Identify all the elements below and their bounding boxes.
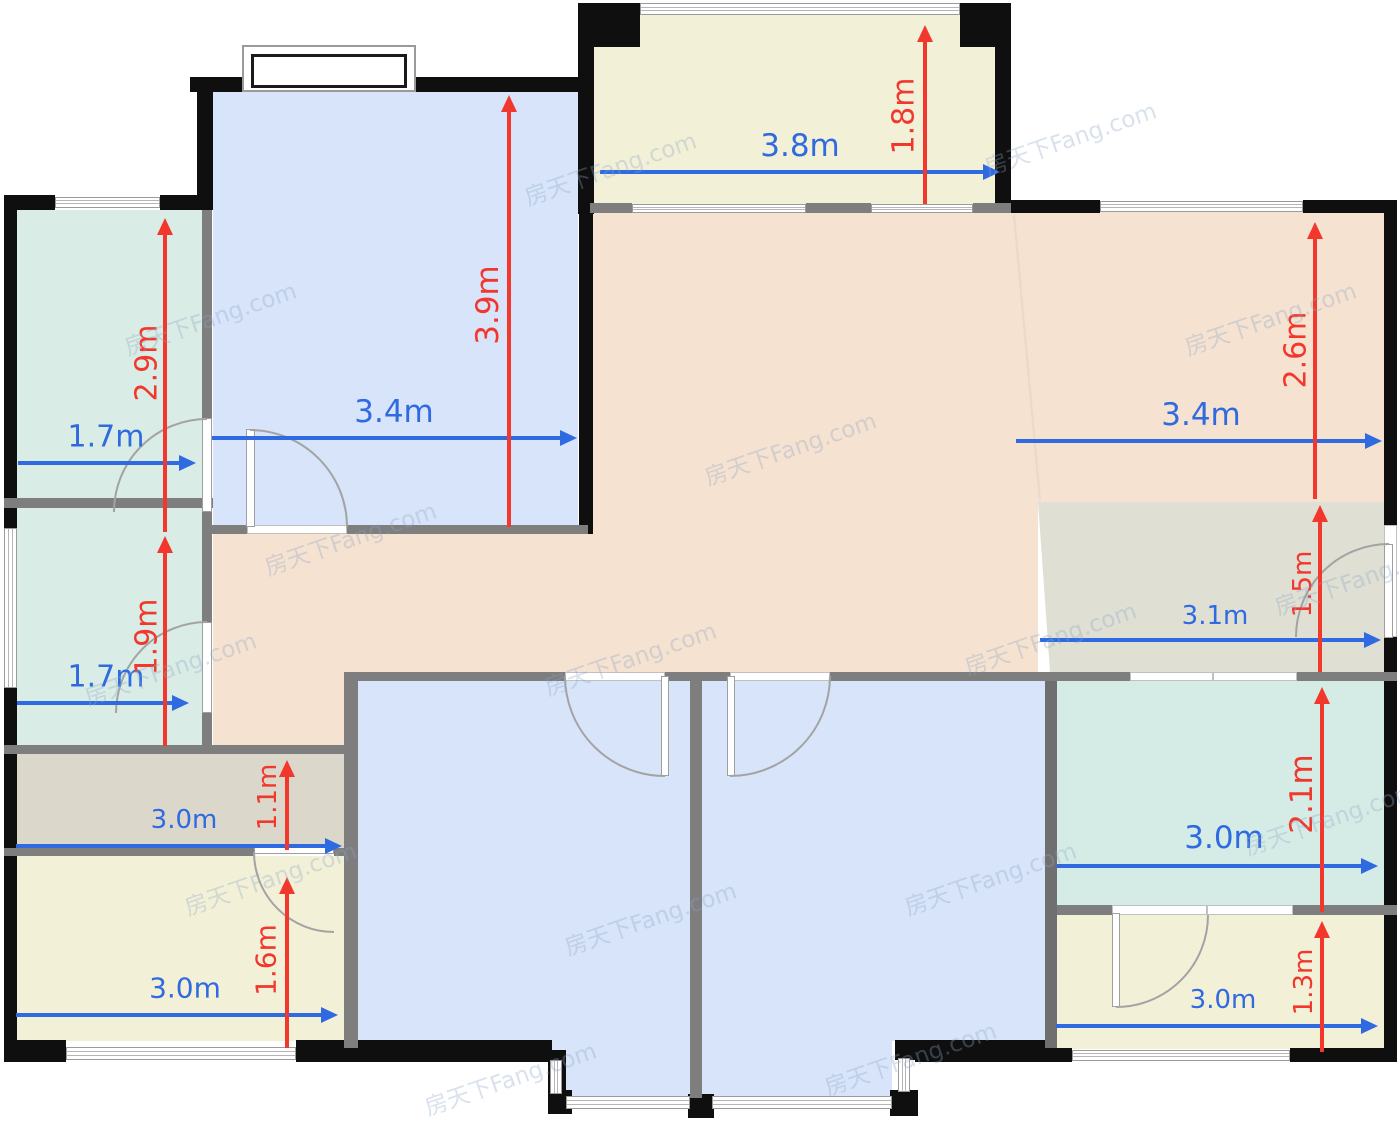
door-leaf — [1112, 913, 1120, 1007]
room-bedroom-top-left — [213, 90, 578, 526]
wall — [4, 195, 17, 528]
interior-wall — [690, 681, 702, 1098]
wall — [1303, 200, 1397, 213]
dimension-arrowhead — [501, 95, 517, 112]
dimension-label: 1.3m — [1289, 949, 1319, 1016]
room-living-dining — [590, 502, 1038, 673]
dimension-arrow — [285, 889, 289, 1048]
wall — [1384, 200, 1397, 525]
door-leaf — [202, 418, 212, 512]
dimension-arrow — [1320, 699, 1324, 912]
room-bedroom-bottom-right — [702, 681, 1045, 1041]
dimension-label: 2.6m — [1279, 312, 1314, 389]
dimension-arrowhead — [560, 430, 577, 446]
interior-wall — [4, 848, 254, 856]
window — [1100, 201, 1303, 212]
dimension-arrowhead — [179, 455, 196, 471]
dimension-arrowhead — [1364, 632, 1381, 648]
dimension-arrowhead — [1307, 222, 1323, 239]
dimension-arrow — [18, 461, 184, 465]
wall — [4, 688, 17, 1048]
dimension-arrowhead — [157, 218, 173, 235]
dimension-arrow — [600, 170, 988, 174]
window — [66, 1047, 296, 1060]
window — [632, 204, 806, 213]
dimension-arrowhead — [172, 695, 189, 711]
room-teal-room-upper-left — [17, 210, 202, 499]
wall-opening — [247, 525, 347, 534]
window — [640, 3, 960, 15]
room-kitchen — [1038, 502, 1384, 673]
room-balcony-bottom-right — [1057, 915, 1384, 1049]
room-bedroom-bottom-left — [358, 681, 690, 1041]
dimension-label: 1.9m — [130, 599, 165, 676]
dimension-arrowhead — [983, 164, 1000, 180]
interior-wall — [4, 498, 213, 508]
dimension-label: 2.1m — [1284, 754, 1320, 834]
window — [712, 1096, 892, 1109]
door-leaf — [727, 676, 735, 776]
wall — [1384, 912, 1397, 1062]
dimension-arrow — [16, 844, 330, 848]
wall — [1045, 1048, 1072, 1062]
wall — [579, 212, 593, 534]
dimension-arrow — [285, 772, 289, 850]
dimension-label: 3.0m — [1184, 820, 1264, 856]
dimension-label: 2.9m — [130, 325, 165, 402]
dimension-arrowhead — [1361, 1018, 1378, 1034]
dimension-arrow — [1313, 234, 1317, 499]
wall — [890, 1090, 918, 1116]
dimension-label: 1.5m — [1288, 551, 1318, 618]
door-leaf — [661, 676, 669, 776]
dimension-arrowhead — [279, 877, 295, 894]
interior-wall — [1045, 681, 1057, 1048]
dimension-arrow — [16, 1013, 326, 1017]
window — [898, 1058, 910, 1092]
door-leaf — [202, 622, 212, 713]
interior-wall — [1038, 672, 1130, 681]
wall-opening — [730, 672, 830, 681]
dimension-arrowhead — [321, 1007, 338, 1023]
interior-wall — [344, 672, 358, 1048]
window — [55, 197, 160, 208]
dimension-label: 3.0m — [1190, 985, 1257, 1015]
dimension-label: 1.1m — [253, 764, 283, 831]
interior-wall — [202, 210, 212, 418]
room-balcony-top — [594, 14, 995, 204]
wall-opening — [1213, 672, 1297, 681]
dimension-arrowhead — [1314, 921, 1330, 938]
wall — [296, 1040, 552, 1062]
dimension-arrowhead — [1312, 505, 1328, 522]
dimension-label: 3.4m — [354, 394, 434, 430]
dimension-label: 3.0m — [151, 805, 218, 835]
dimension-label: 1.6m — [250, 924, 283, 996]
interior-wall — [830, 672, 1045, 681]
door-leaf — [1384, 544, 1393, 638]
bay-window-bump-inner — [251, 54, 407, 88]
dimension-label: 3.8m — [760, 128, 840, 164]
dimension-arrowhead — [1314, 687, 1330, 704]
dimension-arrowhead — [917, 25, 933, 42]
dimension-arrow — [17, 701, 177, 705]
dimension-arrowhead — [1365, 433, 1382, 449]
dimension-label: 3.9m — [470, 265, 506, 345]
wall-opening — [565, 672, 665, 681]
dimension-arrowhead — [325, 838, 342, 854]
interior-wall — [1297, 672, 1397, 681]
wall-opening — [1112, 905, 1207, 915]
wall — [1290, 1048, 1397, 1062]
dimension-label: 3.4m — [1161, 397, 1241, 433]
room-living-dining — [590, 212, 1384, 503]
dimension-label: 1.7m — [68, 420, 145, 455]
window — [566, 1096, 690, 1109]
dimension-label: 1.8m — [887, 78, 922, 155]
dimension-arrowhead — [1361, 858, 1378, 874]
wall — [1008, 200, 1100, 213]
interior-wall — [590, 203, 632, 213]
interior-wall — [4, 745, 358, 754]
interior-wall — [352, 672, 565, 681]
interior-wall — [665, 672, 730, 681]
dimension-label: 3.0m — [149, 972, 221, 1005]
window — [1072, 1050, 1290, 1061]
wall — [578, 3, 640, 47]
dimension-label: 3.1m — [1182, 601, 1249, 631]
wall-opening — [1207, 905, 1293, 915]
wall — [197, 77, 213, 210]
interior-wall — [1293, 905, 1397, 915]
dimension-arrow — [507, 107, 511, 527]
interior-wall — [973, 203, 1011, 213]
wall — [4, 1040, 66, 1062]
interior-wall — [347, 525, 588, 534]
dimension-arrowhead — [157, 536, 173, 553]
window — [550, 1060, 562, 1094]
door-leaf — [246, 429, 255, 527]
wall-opening — [1130, 672, 1213, 681]
dimension-arrow — [1318, 517, 1322, 672]
room-living-dining — [213, 672, 344, 754]
interior-wall — [806, 203, 871, 213]
dimension-arrow — [1320, 933, 1324, 1052]
window — [4, 528, 17, 688]
room-living-dining — [213, 534, 590, 673]
room-bedroom-bottom-right — [702, 1040, 892, 1097]
room-mint-room-right — [1057, 681, 1384, 906]
floor-plan: 1.7m3.4m3.8m3.4m1.7m3.1m3.0m3.0m3.0m3.0m… — [0, 0, 1400, 1124]
wall — [915, 1040, 1045, 1062]
window — [871, 204, 973, 213]
interior-wall — [202, 525, 247, 534]
wall — [895, 1040, 917, 1060]
dimension-arrow — [212, 436, 565, 440]
dimension-arrow — [923, 37, 927, 204]
room-bedroom-bottom-left — [552, 1040, 690, 1097]
